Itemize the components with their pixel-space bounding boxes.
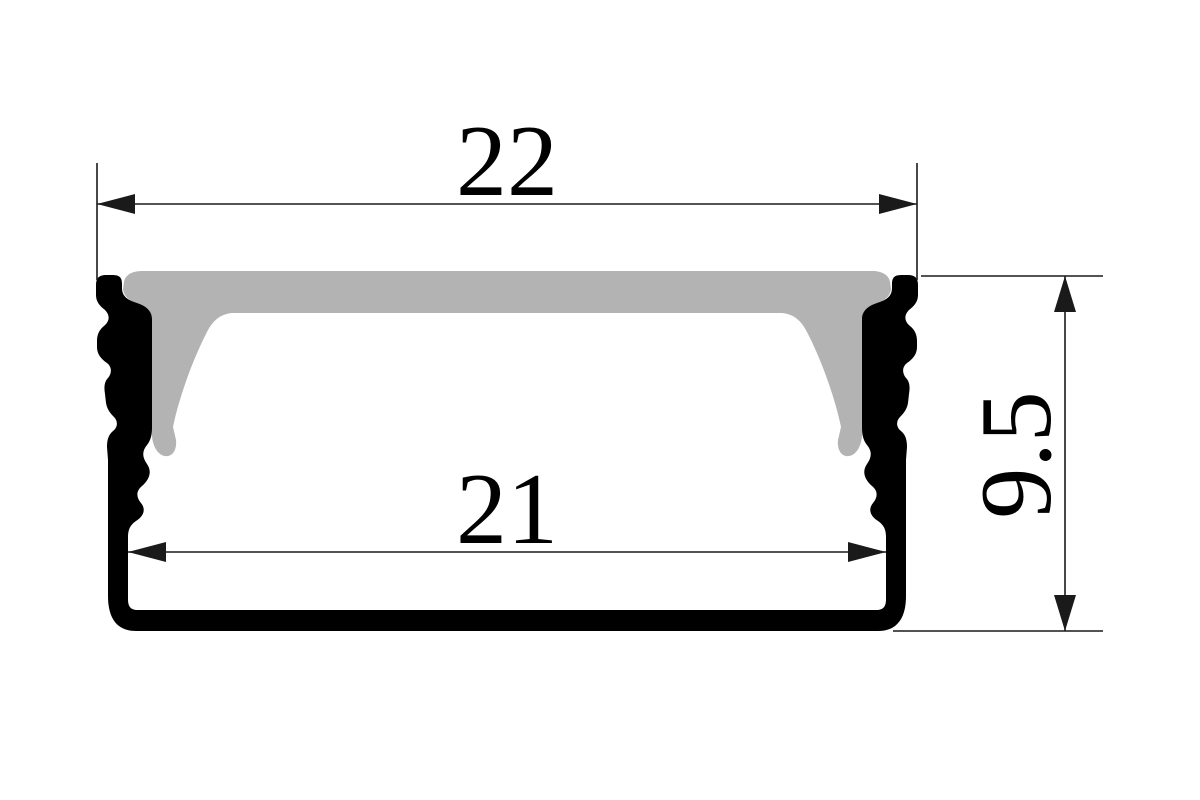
label-overall-width: 22 (456, 105, 558, 218)
arrowhead-width-right-icon (879, 194, 917, 214)
technical-drawing-canvas: 22 21 9.5 (0, 0, 1200, 800)
label-overall-height: 9.5 (960, 391, 1073, 519)
arrowhead-inner-right-icon (848, 542, 886, 562)
diffuser-cover-left-half (123, 271, 512, 456)
arrowhead-height-top-icon (1054, 276, 1076, 312)
label-inner-width: 21 (456, 453, 558, 566)
dimension-arrowheads (97, 194, 1076, 631)
diffuser-cover (123, 271, 891, 456)
dimension-lines (97, 163, 1103, 631)
arrowhead-height-bottom-icon (1054, 595, 1076, 631)
arrowhead-inner-left-icon (128, 542, 166, 562)
diffuser-cover-right-half (502, 271, 891, 456)
arrowhead-width-left-icon (97, 194, 135, 214)
profile-cross-section-drawing: 22 21 9.5 (0, 0, 1200, 800)
